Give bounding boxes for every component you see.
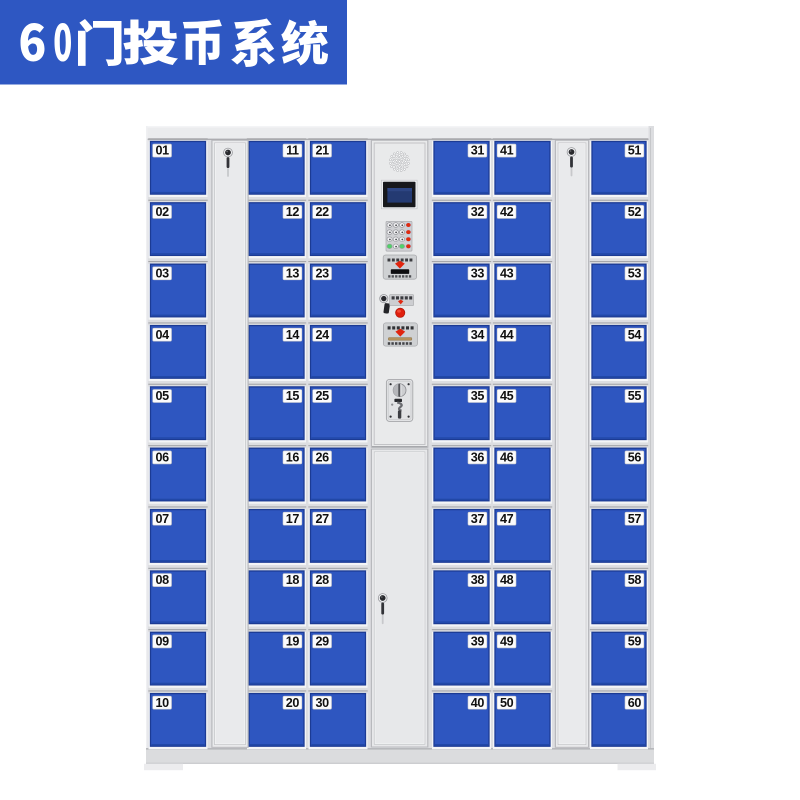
svg-text:54: 54 [628,328,642,342]
svg-text:45: 45 [500,389,514,403]
svg-text:42: 42 [500,205,514,219]
svg-text:03: 03 [155,266,169,280]
svg-text:52: 52 [628,205,642,219]
svg-text:59: 59 [628,635,642,649]
svg-text:41: 41 [500,144,514,158]
svg-text:50: 50 [500,696,514,710]
svg-text:21: 21 [315,144,329,158]
svg-text:38: 38 [471,573,485,587]
svg-text:26: 26 [315,451,329,465]
svg-text:01: 01 [155,144,169,158]
svg-text:51: 51 [628,144,642,158]
svg-text:44: 44 [500,328,514,342]
svg-text:36: 36 [471,451,485,465]
svg-text:04: 04 [155,328,169,342]
svg-text:08: 08 [155,573,169,587]
svg-text:37: 37 [471,512,485,526]
svg-text:33: 33 [471,266,485,280]
svg-text:57: 57 [628,512,642,526]
svg-text:49: 49 [500,635,514,649]
svg-text:12: 12 [286,205,300,219]
svg-text:06: 06 [155,451,169,465]
svg-text:20: 20 [286,696,300,710]
svg-text:24: 24 [315,328,329,342]
svg-text:46: 46 [500,451,514,465]
svg-text:14: 14 [286,328,300,342]
svg-text:53: 53 [628,266,642,280]
svg-text:39: 39 [471,635,485,649]
svg-text:28: 28 [315,573,329,587]
svg-text:10: 10 [155,696,169,710]
svg-text:40: 40 [471,696,485,710]
svg-text:23: 23 [315,266,329,280]
svg-text:56: 56 [628,451,642,465]
svg-text:48: 48 [500,573,514,587]
svg-text:25: 25 [315,389,329,403]
svg-text:60: 60 [628,696,642,710]
svg-text:13: 13 [286,266,300,280]
svg-text:05: 05 [155,389,169,403]
svg-text:32: 32 [471,205,485,219]
svg-text:58: 58 [628,573,642,587]
svg-text:30: 30 [315,696,329,710]
svg-text:27: 27 [315,512,329,526]
svg-text:55: 55 [628,389,642,403]
svg-text:43: 43 [500,266,514,280]
svg-text:35: 35 [471,389,485,403]
svg-text:31: 31 [471,144,485,158]
svg-text:17: 17 [286,512,300,526]
svg-text:19: 19 [286,635,300,649]
svg-text:09: 09 [155,635,169,649]
svg-text:29: 29 [315,635,329,649]
svg-text:47: 47 [500,512,514,526]
svg-text:18: 18 [286,573,300,587]
svg-text:07: 07 [155,512,169,526]
svg-text:34: 34 [471,328,485,342]
svg-text:16: 16 [286,451,300,465]
svg-text:11: 11 [286,144,299,158]
svg-text:02: 02 [155,205,169,219]
svg-text:15: 15 [286,389,300,403]
svg-text:22: 22 [315,205,329,219]
